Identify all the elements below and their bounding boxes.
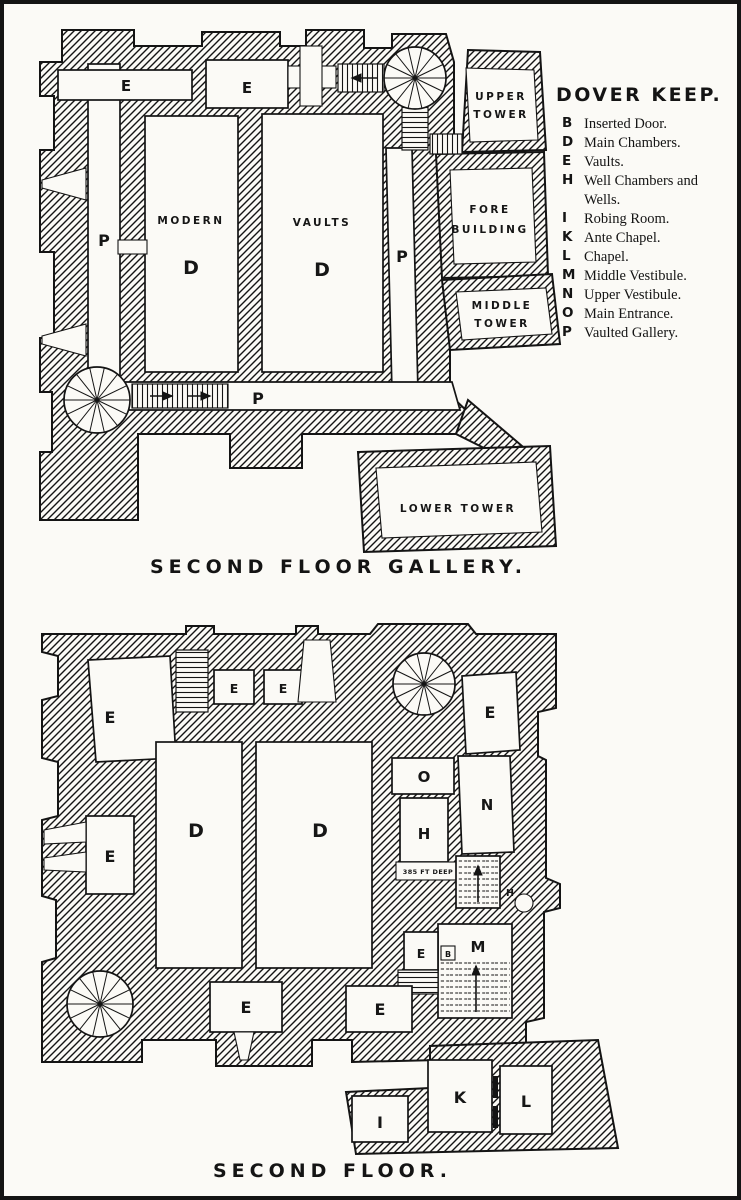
plan-second-floor-gallery: E E P P P MODERN D VAULTS D UPPER TOWER … [40,30,560,552]
room-label-well: H [418,825,431,843]
engraving-page: E E P P P MODERN D VAULTS D UPPER TOWER … [0,0,741,1200]
chamber-left [156,742,242,968]
legend-label: Chapel. [584,248,734,266]
east-gallery [386,148,418,392]
label-fore-building: BUILDING [451,224,528,236]
legend-label: Main Chambers. [584,134,734,152]
stair-treads [440,958,510,1016]
room-label-vault: E [121,77,131,95]
spiral-stair-ne [384,47,446,109]
chapel-arch-pier [493,1106,498,1128]
room-label-vault: E [230,681,239,696]
room-label-ante-chapel: K [454,1088,467,1107]
legend-key: B [562,115,584,133]
caption-second-floor-gallery: SECOND FLOOR GALLERY. [150,556,527,578]
room-label-vestibule: M [471,938,486,956]
legend-key: H [562,172,584,208]
legend-title: DOVER KEEP. [556,84,738,106]
room-label-chamber: D [188,820,204,842]
chamber-right [256,742,372,968]
modern-chamber [145,116,238,372]
upper-tower-room [466,68,538,142]
legend-entry: BInserted Door. [562,115,738,133]
middle-tower-room [456,288,552,340]
room-label-chamber: D [183,257,199,279]
legend-key: P [562,324,584,342]
legend-label: Vaults. [584,153,734,171]
legend-entry: NUpper Vestibule. [562,286,738,304]
legend-entry: MMiddle Vestibule. [562,267,738,285]
label-lower-tower: LOWER TOWER [400,503,516,515]
legend-entry: IRobing Room. [562,210,738,228]
room-label-vault: E [375,1000,386,1019]
legend-entry: HWell Chambers and Wells. [562,172,738,208]
label-middle-tower: TOWER [474,318,529,330]
legend-key: N [562,286,584,304]
cross-passage [300,46,322,106]
room-label-chamber: D [312,820,328,842]
legend-label: Upper Vestibule. [584,286,734,304]
vaults-chamber [262,114,383,372]
label-upper-tower: TOWER [473,109,528,121]
label-middle-tower: MIDDLE [472,300,533,312]
label-inserted-door: B [445,950,451,959]
spiral-stair-sw [67,971,133,1037]
room-label-robing: I [377,1113,383,1132]
legend-entry: DMain Chambers. [562,134,738,152]
legend-entry: EVaults. [562,153,738,171]
legend-key: E [562,153,584,171]
caption-second-floor: SECOND FLOOR. [213,1160,452,1182]
legend-label: Vaulted Gallery. [584,324,734,342]
legend-label: Main Entrance. [584,305,734,323]
legend-entry: PVaulted Gallery. [562,324,738,342]
well-circle [515,894,533,912]
room-label-vault: E [241,998,252,1017]
lower-tower-room [376,462,542,538]
legend-key: K [562,229,584,247]
west-gallery [88,64,120,384]
room-label-gallery: P [252,389,264,408]
room-label-chapel: L [521,1092,531,1111]
legend-key: O [562,305,584,323]
room-label-gallery: P [396,247,408,266]
legend-label: Robing Room. [584,210,734,228]
legend-entry: OMain Entrance. [562,305,738,323]
arrow-loop [298,640,336,702]
legend-key: L [562,248,584,266]
legend-key: I [562,210,584,228]
room-label-vault: E [105,847,116,866]
doorway [118,240,147,254]
label-well-small: H [506,888,514,899]
legend-key: D [562,134,584,152]
legend: DOVER KEEP. BInserted Door. DMain Chambe… [556,84,738,344]
room-label-entrance: O [418,768,431,786]
chapel-arch-pier [493,1076,498,1098]
legend-label: Middle Vestibule. [584,267,734,285]
wall-connector [456,400,522,452]
stair-treads [132,384,228,408]
stair-treads [430,134,462,154]
fore-building-room [450,168,536,264]
legend-label: Well Chambers and Wells. [584,172,734,208]
legend-label: Inserted Door. [584,115,734,133]
label-fore-building: FORE [469,204,510,216]
spiral-stair-ne [393,653,455,715]
room-label-vaults: VAULTS [293,217,351,229]
stair-treads [176,650,208,712]
legend-key: M [562,267,584,285]
room-label-vault: E [485,703,496,722]
label-upper-tower: UPPER [475,91,527,103]
room-label-vault: E [242,79,252,97]
room-label-vault: E [279,681,288,696]
room-label-vault: E [105,708,116,727]
legend-entry: KAnte Chapel. [562,229,738,247]
legend-entry: LChapel. [562,248,738,266]
room-label-gallery: P [98,231,110,250]
legend-label: Ante Chapel. [584,229,734,247]
spiral-stair-sw [64,367,130,433]
plan-second-floor: E E E E E D D O H N M E B E E K L I H 38… [42,624,618,1154]
room-label-modern: MODERN [157,215,224,227]
room-label-vault: E [417,946,426,961]
room-label-vestibule: N [481,796,494,814]
legend-rows: BInserted Door. DMain Chambers. EVaults.… [556,115,738,343]
label-well-depth: 385 FT DEEP [403,868,453,876]
room-label-chamber: D [314,259,330,281]
